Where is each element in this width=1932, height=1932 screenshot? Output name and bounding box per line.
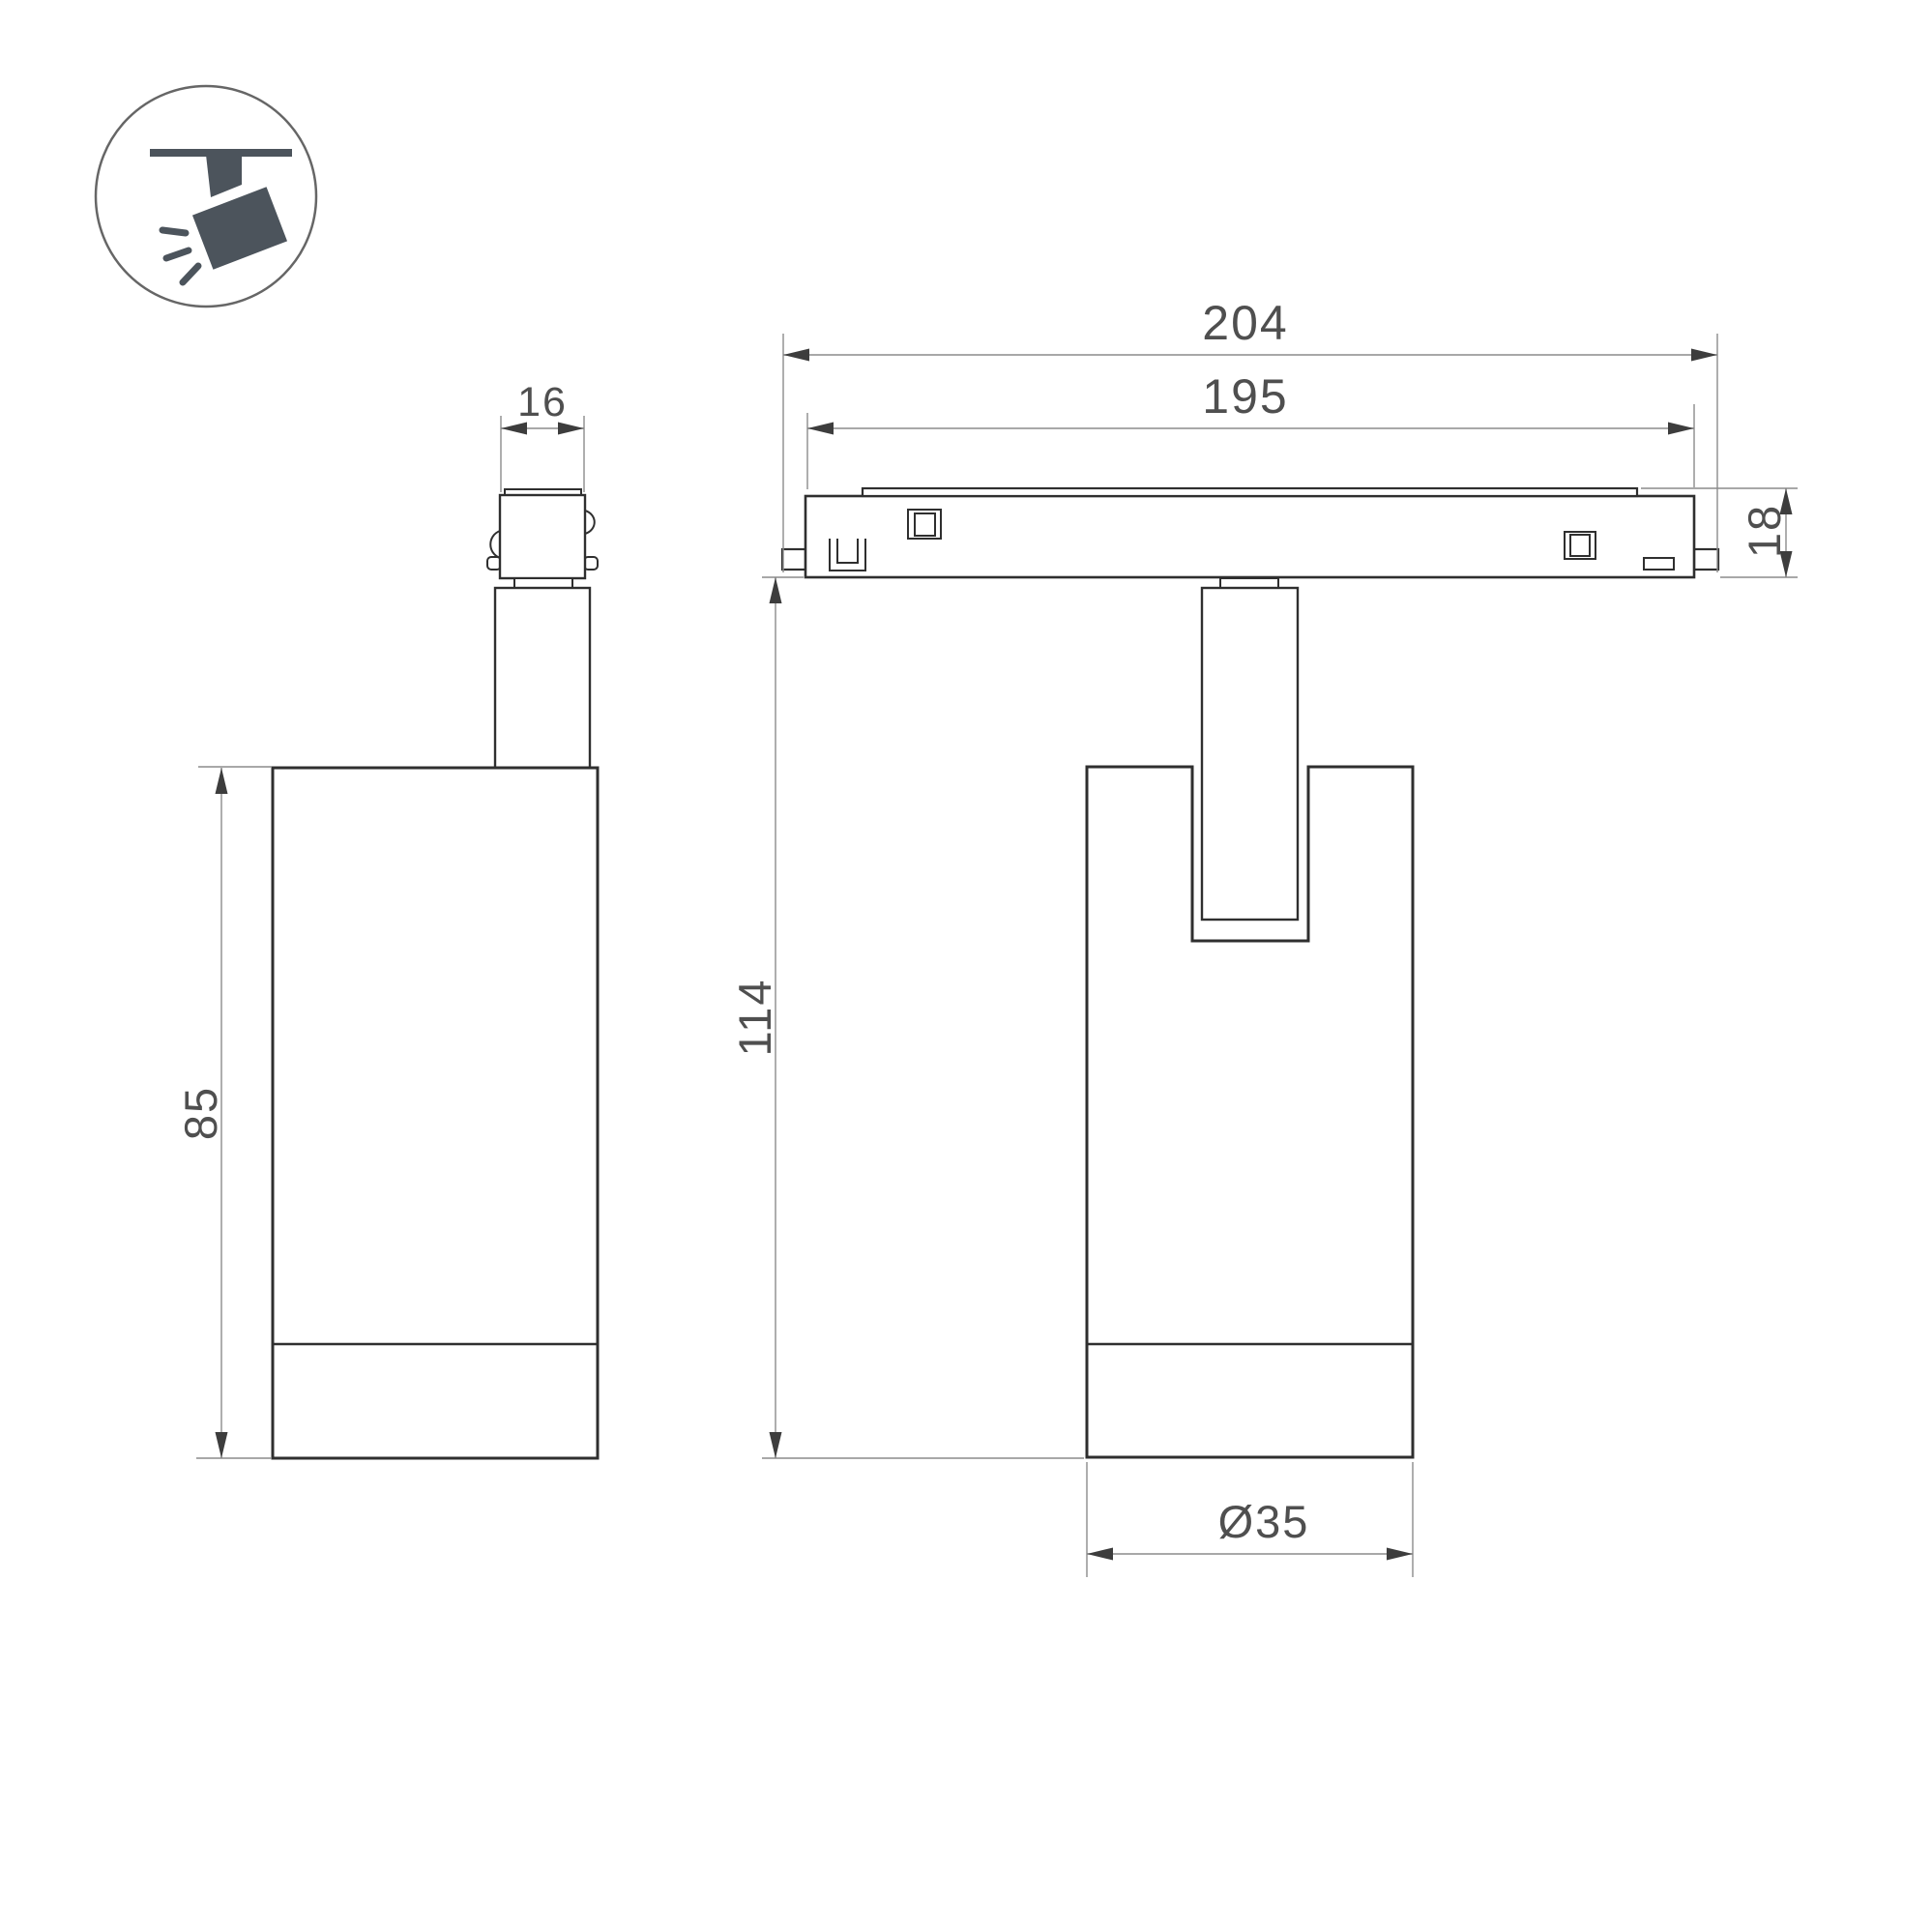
track-top-strip	[863, 488, 1637, 496]
dimension-label: 85	[175, 1086, 226, 1140]
dimension-label: 114	[729, 979, 780, 1057]
arrowhead	[216, 768, 228, 794]
dim-track-inner-length: 195	[807, 369, 1694, 489]
dimension-label: Ø35	[1218, 1496, 1310, 1547]
arrowhead	[770, 577, 782, 603]
track-right-connector	[1694, 549, 1718, 570]
dim-total-height: 114	[729, 577, 1084, 1458]
track-left-connector	[782, 549, 805, 570]
track-body	[805, 496, 1694, 577]
front-view	[782, 488, 1718, 1457]
track-spotlight-icon	[96, 86, 316, 307]
arrowhead	[807, 423, 834, 435]
arrowhead	[770, 1432, 782, 1458]
front-stem	[1202, 588, 1298, 920]
side-view	[273, 489, 598, 1458]
dimension-label: 195	[1202, 369, 1288, 424]
arrowhead	[1668, 423, 1694, 435]
dim-body-height: 85	[175, 767, 272, 1458]
technical-drawing: 16 85 204	[0, 0, 1932, 1932]
dim-adapter-width: 16	[501, 379, 584, 492]
arrowhead	[1087, 1548, 1113, 1561]
dim-body-diameter: Ø35	[1087, 1462, 1413, 1577]
icon-circle	[96, 86, 316, 307]
side-stem	[495, 588, 590, 768]
dimension-label: 18	[1739, 504, 1790, 558]
arrowhead	[783, 349, 809, 362]
dimension-label: 16	[517, 379, 568, 425]
front-collar	[1220, 578, 1278, 588]
drawing-sheet: 16 85 204	[0, 0, 1932, 1932]
side-adapter-right-ear	[585, 511, 595, 534]
arrowhead	[216, 1432, 228, 1458]
side-body	[273, 768, 598, 1458]
side-neck	[514, 578, 572, 588]
side-adapter-box	[500, 495, 585, 578]
arrowhead	[1387, 1548, 1413, 1561]
dimension-label: 204	[1202, 296, 1288, 350]
side-adapter-left-ear	[490, 531, 500, 558]
arrowhead	[1691, 349, 1717, 362]
